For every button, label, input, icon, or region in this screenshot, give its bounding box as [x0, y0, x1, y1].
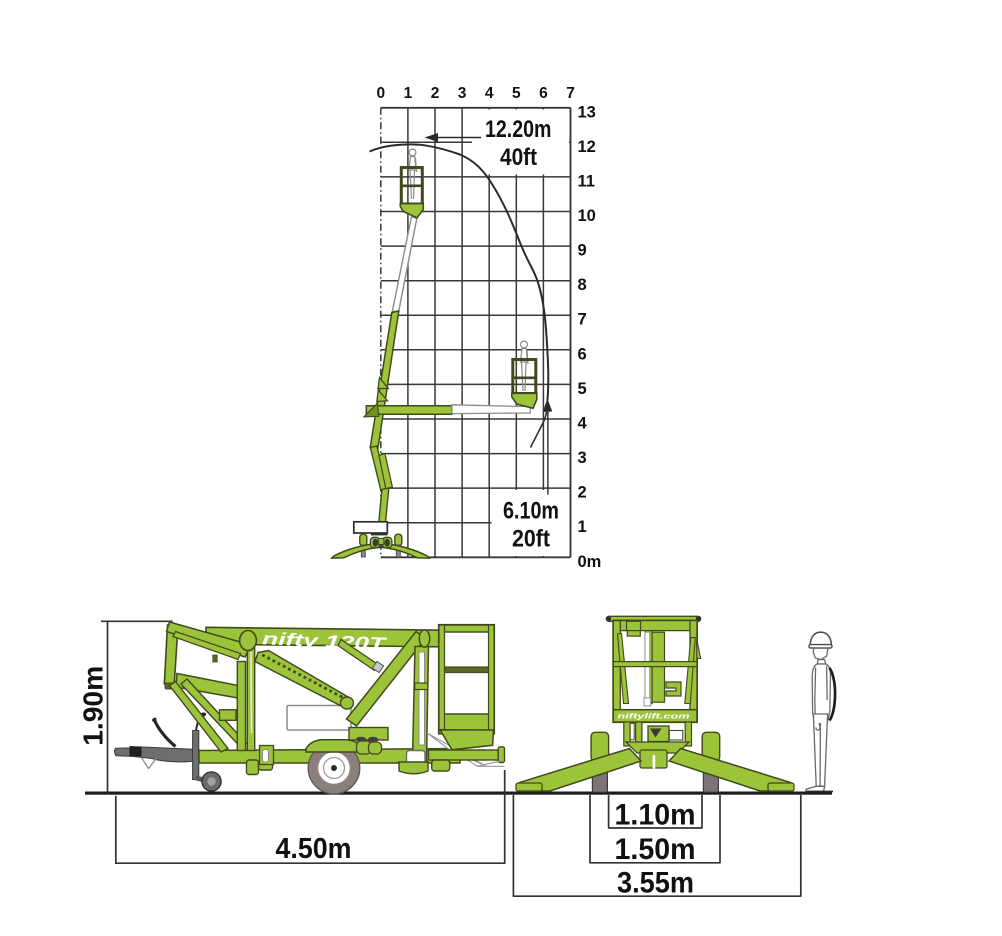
svg-text:1.10m: 1.10m — [615, 799, 696, 832]
svg-text:5: 5 — [578, 380, 587, 398]
svg-text:7: 7 — [578, 311, 587, 329]
svg-text:1.50m: 1.50m — [615, 833, 696, 866]
svg-text:5: 5 — [512, 85, 521, 102]
svg-text:12.20m: 12.20m — [485, 116, 552, 143]
svg-text:3: 3 — [458, 85, 467, 102]
svg-text:8: 8 — [578, 276, 587, 294]
svg-text:2: 2 — [431, 85, 440, 102]
svg-text:40ft: 40ft — [500, 144, 537, 171]
svg-text:9: 9 — [578, 242, 587, 260]
svg-text:6.10m: 6.10m — [503, 498, 559, 525]
svg-text:10: 10 — [578, 207, 596, 225]
svg-text:6: 6 — [539, 85, 548, 102]
svg-text:12: 12 — [578, 138, 596, 156]
svg-text:4.50m: 4.50m — [276, 833, 352, 865]
svg-text:2: 2 — [578, 484, 587, 502]
svg-text:1.90m: 1.90m — [78, 666, 109, 746]
svg-text:20ft: 20ft — [512, 526, 550, 553]
svg-text:0: 0 — [376, 85, 385, 102]
svg-text:3.55m: 3.55m — [617, 867, 694, 900]
svg-text:6: 6 — [578, 345, 587, 363]
svg-text:1: 1 — [404, 85, 413, 102]
svg-text:7: 7 — [566, 85, 575, 102]
svg-text:11: 11 — [578, 172, 595, 190]
svg-text:4: 4 — [485, 85, 494, 102]
svg-text:0m: 0m — [578, 553, 602, 571]
svg-text:4: 4 — [578, 415, 588, 433]
svg-text:niftylift.com: niftylift.com — [618, 712, 691, 721]
svg-text:1: 1 — [578, 518, 587, 536]
svg-text:3: 3 — [578, 449, 587, 467]
svg-text:13: 13 — [578, 103, 596, 121]
